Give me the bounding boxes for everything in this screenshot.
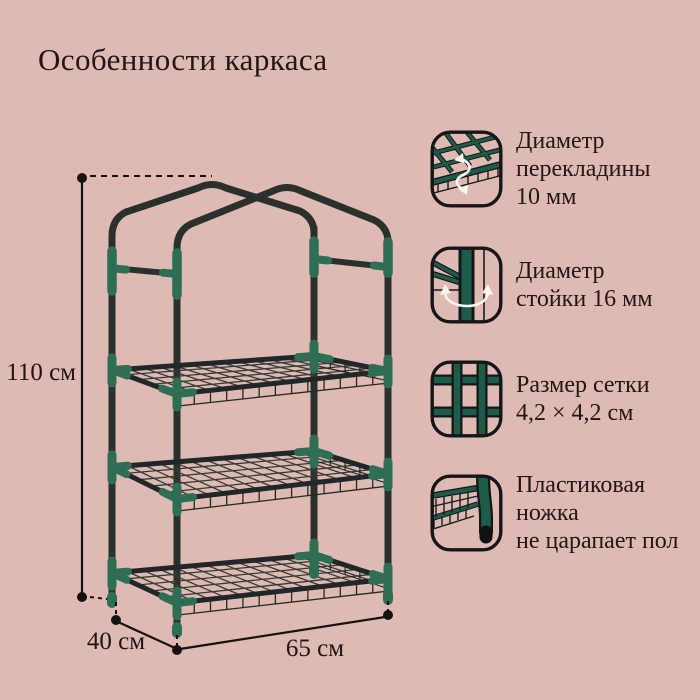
- feature-line: 4,2 × 4,2 см: [516, 399, 650, 427]
- feature-line: Диаметр: [516, 127, 650, 155]
- feature-text: Пластиковая ножка не царапает пол: [516, 471, 678, 555]
- crossbar-diameter-icon: [430, 130, 503, 208]
- mesh-size-icon: [430, 360, 503, 438]
- feature-line: ножка: [516, 499, 678, 527]
- depth-dimension-label: 40 см: [84, 628, 148, 656]
- feature-post-diameter: Диаметр стойки 16 мм: [430, 240, 692, 330]
- feature-line: Размер сетки: [516, 371, 650, 399]
- shelf-frame-illustration: [0, 0, 420, 700]
- feature-plastic-foot: Пластиковая ножка не царапает пол: [430, 468, 692, 558]
- feature-line: Пластиковая: [516, 471, 678, 499]
- feature-mesh-size: Размер сетки 4,2 × 4,2 см: [430, 354, 692, 444]
- feature-text: Размер сетки 4,2 × 4,2 см: [516, 371, 650, 427]
- feature-line: не царапает пол: [516, 527, 678, 555]
- frame-shoulder-connectors: [112, 241, 388, 295]
- feature-text: Диаметр стойки 16 мм: [516, 257, 653, 313]
- post-diameter-icon: [430, 246, 503, 324]
- feature-line: стойки 16 мм: [516, 285, 653, 313]
- frame-shelves: [112, 344, 390, 616]
- frame-crossbars: [112, 259, 388, 274]
- product-infographic: Особенности каркаса: [0, 0, 700, 700]
- feature-line: 10 мм: [516, 183, 650, 211]
- feature-crossbar-diameter: Диаметр перекладины 10 мм: [430, 124, 692, 214]
- width-dimension-label: 65 см: [281, 635, 349, 663]
- feature-line: Диаметр: [516, 257, 653, 285]
- height-dimension-label: 110 см: [2, 359, 76, 387]
- feature-line: перекладины: [516, 155, 650, 183]
- feature-text: Диаметр перекладины 10 мм: [516, 127, 650, 211]
- plastic-foot-icon: [430, 474, 503, 552]
- frame-arches: [112, 185, 388, 267]
